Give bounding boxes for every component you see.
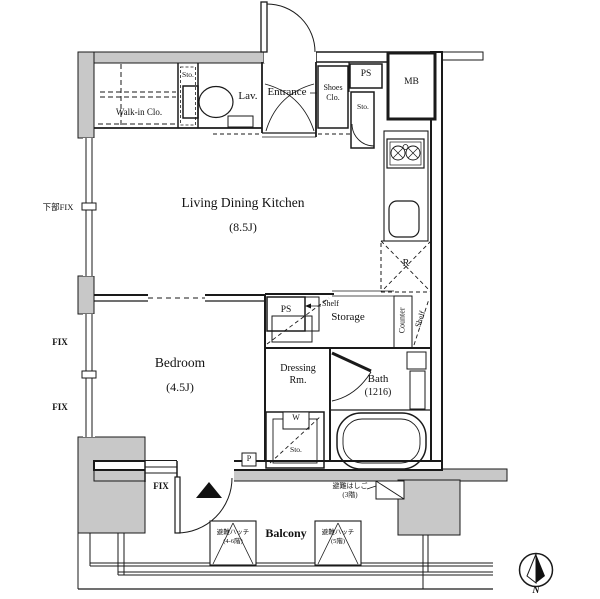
kitchen-fixtures xyxy=(384,131,428,241)
label-refrigerator: R xyxy=(397,258,415,269)
label-fix-left-2: FIX xyxy=(46,403,74,413)
label-pole: P xyxy=(242,455,256,464)
interior-walls xyxy=(94,62,431,462)
label-pipe-space-top: PS xyxy=(351,69,381,79)
label-storage-top: Sto. xyxy=(177,71,199,79)
entrance-door xyxy=(261,2,315,131)
label-lavatory: Lav. xyxy=(231,90,265,102)
label-balcony: Balcony xyxy=(256,527,316,540)
entry-triangle-marker xyxy=(196,482,222,498)
label-compass-north: N xyxy=(528,585,544,596)
label-shoes-closet: Shoes Clo. xyxy=(317,83,349,102)
label-counter: Counter xyxy=(399,290,408,350)
label-pipe-space-mid: PS xyxy=(269,305,303,315)
label-ldk-size: (8.5J) xyxy=(133,221,353,234)
sink-icon xyxy=(389,201,419,237)
label-storage-right: Sto. xyxy=(352,103,374,111)
label-meter-box: MB xyxy=(389,77,434,87)
storage-right-door-arc xyxy=(352,124,374,146)
label-walk-in-closet: Walk-in Clo. xyxy=(98,108,180,118)
shelf-arrow-icon xyxy=(305,304,311,309)
doors xyxy=(175,2,374,533)
vanity xyxy=(272,316,312,342)
compass-icon xyxy=(520,554,553,587)
annotation-marks xyxy=(242,93,321,466)
label-entrance: Entrance xyxy=(262,86,312,98)
label-escape-hatch-1: 避難ハッチ (4-6階) xyxy=(211,529,255,546)
label-washer-storage: Sto. xyxy=(283,446,309,454)
label-bedroom-name: Bedroom xyxy=(100,356,260,371)
label-washer: W xyxy=(284,414,308,423)
label-ldk-name: Living Dining Kitchen xyxy=(133,196,353,211)
stove-icon xyxy=(387,139,424,168)
label-escape-ladder: 避難はしご (3階) xyxy=(324,482,376,500)
storage-right-box xyxy=(351,92,374,148)
balcony-railing xyxy=(78,533,493,589)
label-bath: Bath (1216) xyxy=(338,373,418,399)
label-fix-lower-left: 下部FIX xyxy=(36,203,80,212)
label-storage-room: Storage xyxy=(312,311,384,323)
label-fix-left-1: FIX xyxy=(46,338,74,348)
label-escape-hatch-2: 避難ハッチ (5階) xyxy=(316,529,360,546)
label-fix-bottom: FIX xyxy=(146,482,176,492)
label-dressing-room: Dressing Rm. xyxy=(267,363,329,387)
label-bedroom-size: (4.5J) xyxy=(100,381,260,394)
label-shelf-mid: Shelf xyxy=(322,300,352,309)
floor-plan-canvas: Walk-in Clo. Sto. Lav. Entrance Shoes Cl… xyxy=(0,0,600,599)
